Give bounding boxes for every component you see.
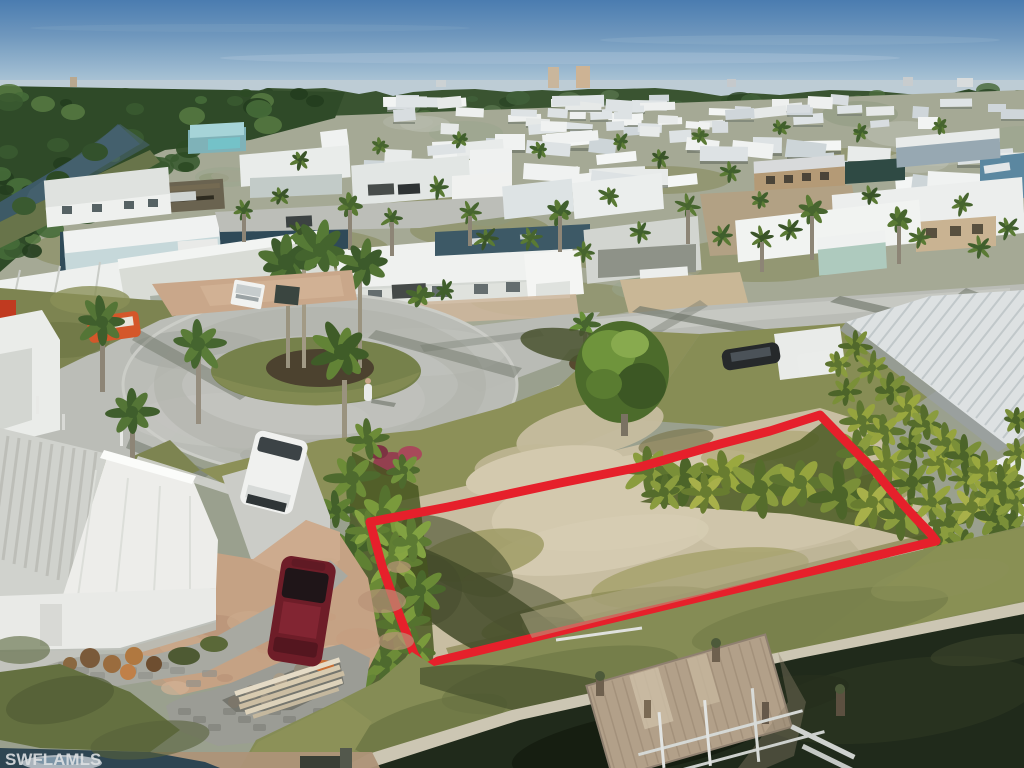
svg-text:SWFLAMLS: SWFLAMLS [5, 750, 101, 768]
